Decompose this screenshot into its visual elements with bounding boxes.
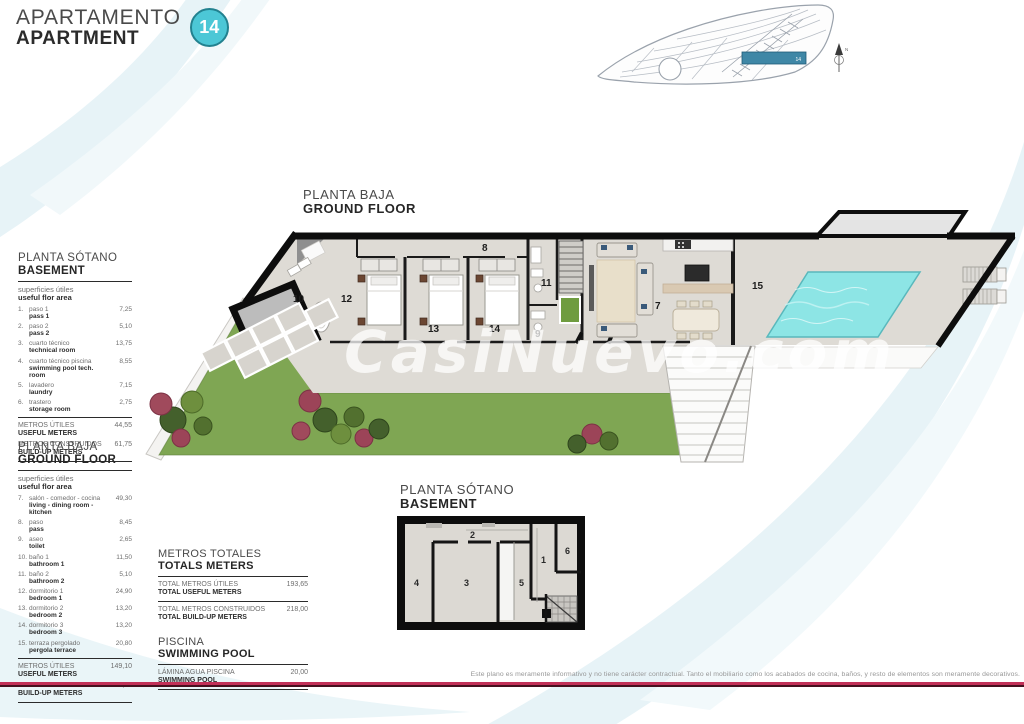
legend-item-value: 13,75 bbox=[110, 340, 132, 347]
legend-item-names: paso 2 pass 2 bbox=[29, 323, 110, 337]
legend-item-number: 1. bbox=[18, 306, 29, 313]
totals-block: METROS TOTALES TOTALS METERS TOTAL METRO… bbox=[158, 548, 308, 694]
total-label-en: TOTAL USEFUL METERS bbox=[158, 589, 282, 597]
legend-item-name-en: toilet bbox=[29, 543, 108, 550]
legend-item-number: 7. bbox=[18, 495, 29, 502]
ground-useful-meters: METROS ÚTILES USEFUL METERS 149,10 bbox=[18, 663, 132, 679]
total-value: 193,65 bbox=[282, 581, 308, 589]
total-value: 44,55 bbox=[106, 422, 132, 430]
title-english: APARTMENT bbox=[16, 29, 181, 49]
legend-item: 7. salón - comedor - cocina living - din… bbox=[18, 495, 132, 516]
legend-item-value: 8,55 bbox=[110, 358, 132, 365]
legend-item-number: 8. bbox=[18, 519, 29, 526]
legend-ground-subtitle-en: useful flor area bbox=[18, 483, 132, 491]
pool-title-en: SWIMMING POOL bbox=[158, 648, 308, 660]
legend-item-names: cuarto técnico technical room bbox=[29, 340, 110, 354]
legend-ground-title-es: PLANTA BAJA bbox=[18, 441, 132, 454]
legend-item-name-en: bedroom 2 bbox=[29, 612, 108, 619]
legend-item-name-es: paso 2 bbox=[29, 323, 108, 330]
legend-item-name-es: dormitorio 3 bbox=[29, 622, 108, 629]
divider bbox=[158, 664, 308, 665]
divider bbox=[18, 702, 132, 703]
legend-item-names: paso pass bbox=[29, 519, 110, 533]
total-label-es: LÁMINA AGUA PISCINA bbox=[158, 669, 282, 677]
legend-item-names: baño 1 bathroom 1 bbox=[29, 554, 110, 568]
legend-item: 5. lavadero laundry 7,15 bbox=[18, 382, 132, 396]
legend-item: 1. paso 1 pass 1 7,25 bbox=[18, 306, 132, 320]
room-label-15: 15 bbox=[752, 281, 764, 292]
room-label-1: 1 bbox=[541, 555, 546, 565]
legend-item-name-es: baño 1 bbox=[29, 554, 108, 561]
legend-item-name-es: dormitorio 1 bbox=[29, 588, 108, 595]
legend-item-name-es: trastero bbox=[29, 399, 108, 406]
dining-table bbox=[673, 301, 719, 339]
ground-floor-plan: 10 12 13 14 8 11 9 7 15 bbox=[145, 205, 1024, 470]
room-label-12: 12 bbox=[341, 294, 353, 305]
divider bbox=[158, 576, 308, 577]
room-label-6: 6 bbox=[565, 546, 570, 556]
room-label-14: 14 bbox=[489, 324, 501, 335]
room-label-5: 5 bbox=[519, 578, 524, 588]
legend-item-names: aseo toilet bbox=[29, 536, 110, 550]
room-label-4: 4 bbox=[414, 578, 419, 588]
divider bbox=[18, 281, 132, 282]
legend-item-name-es: lavadero bbox=[29, 382, 108, 389]
ground-floor-plan-title: PLANTA BAJA GROUND FLOOR bbox=[303, 188, 416, 216]
basement-useful-meters: METROS ÚTILES USEFUL METERS 44,55 bbox=[18, 422, 132, 438]
basement-title-en: BASEMENT bbox=[400, 497, 514, 511]
room-label-10: 10 bbox=[293, 294, 305, 305]
legend-item-value: 13,20 bbox=[110, 622, 132, 629]
legend-basement-title-es: PLANTA SÓTANO bbox=[18, 252, 132, 265]
legend-item-name-en: swimming pool tech. room bbox=[29, 365, 108, 379]
legend-item-name-es: terraza pergolado bbox=[29, 640, 108, 647]
divider bbox=[18, 658, 132, 659]
legend-item-name-es: paso 1 bbox=[29, 306, 108, 313]
closets bbox=[361, 259, 515, 271]
legend-item: 11. baño 2 bathroom 2 5,10 bbox=[18, 571, 132, 585]
legend-item-number: 6. bbox=[18, 399, 29, 406]
unit-number-badge: 14 bbox=[190, 8, 229, 47]
ground-floor-title-en: GROUND FLOOR bbox=[303, 202, 416, 216]
legend-item-number: 5. bbox=[18, 382, 29, 389]
legend-item-names: paso 1 pass 1 bbox=[29, 306, 110, 320]
legend-basement-subtitle-en: useful flor area bbox=[18, 294, 132, 302]
divider bbox=[18, 470, 132, 471]
legend-item-value: 2,65 bbox=[110, 536, 132, 543]
footer-line bbox=[0, 682, 1024, 687]
legend-item-name-en: living - dining room - kitchen bbox=[29, 502, 108, 516]
site-outline bbox=[598, 5, 833, 84]
legend-item-name-en: pass bbox=[29, 526, 108, 533]
legend-item-name-es: cuarto técnico piscina bbox=[29, 358, 108, 365]
legend-item-number: 3. bbox=[18, 340, 29, 347]
legend-item-name-en: pass 1 bbox=[29, 313, 108, 320]
total-value: 149,10 bbox=[106, 663, 132, 671]
page-header: APARTAMENTO APARTMENT 14 bbox=[16, 7, 229, 49]
internal-stairs bbox=[559, 241, 583, 293]
legend-item-number: 13. bbox=[18, 605, 29, 612]
legend-ground-items: 7. salón - comedor - cocina living - din… bbox=[18, 495, 132, 654]
total-value: 20,00 bbox=[282, 669, 308, 677]
page-title: APARTAMENTO APARTMENT bbox=[16, 7, 181, 49]
basement-plan-title: PLANTA SÓTANO BASEMENT bbox=[400, 483, 514, 511]
terrace-edge-band bbox=[738, 347, 938, 368]
legend-item-value: 5,10 bbox=[110, 571, 132, 578]
legend-item-number: 11. bbox=[18, 571, 29, 578]
legend-item-value: 7,25 bbox=[110, 306, 132, 313]
total-label-es: METROS ÚTILES bbox=[18, 663, 106, 671]
basement-plan: 2 4 3 5 1 6 bbox=[396, 514, 588, 634]
legend-item: 6. trastero storage room 2,75 bbox=[18, 399, 132, 413]
legend-item-name-en: technical room bbox=[29, 347, 108, 354]
room-label-2: 2 bbox=[470, 530, 475, 540]
legend-item-names: salón - comedor - cocina living - dining… bbox=[29, 495, 110, 516]
legend-item: 13. dormitorio 2 bedroom 2 13,20 bbox=[18, 605, 132, 619]
legend-item: 9. aseo toilet 2,65 bbox=[18, 536, 132, 550]
legend-item-value: 8,45 bbox=[110, 519, 132, 526]
legend-item-names: dormitorio 2 bedroom 2 bbox=[29, 605, 110, 619]
legend-item-name-es: paso bbox=[29, 519, 108, 526]
legend-item-name-es: salón - comedor - cocina bbox=[29, 495, 108, 502]
legend-item-name-es: dormitorio 2 bbox=[29, 605, 108, 612]
legend-ground-floor: PLANTA BAJA GROUND FLOOR superficies úti… bbox=[18, 441, 132, 707]
pool-title-es: PISCINA bbox=[158, 636, 308, 648]
total-builtup-meters: TOTAL METROS CONSTRUIDOS TOTAL BUILD-UP … bbox=[158, 606, 308, 622]
legend-item-name-en: bathroom 1 bbox=[29, 561, 108, 568]
legend-item-value: 5,10 bbox=[110, 323, 132, 330]
totals-title-es: METROS TOTALES bbox=[158, 548, 308, 560]
basement-lightwell bbox=[500, 542, 514, 620]
legend-item-name-en: pergola terrace bbox=[29, 647, 108, 654]
legend-item-names: trastero storage room bbox=[29, 399, 110, 413]
room-label-7: 7 bbox=[655, 301, 661, 312]
legend-item: 14. dormitorio 3 bedroom 3 13,20 bbox=[18, 622, 132, 636]
site-plan: 14 N bbox=[592, 2, 860, 96]
legend-item-name-en: bedroom 1 bbox=[29, 595, 108, 602]
compass-label: N bbox=[845, 47, 848, 52]
legend-item: 8. paso pass 8,45 bbox=[18, 519, 132, 533]
total-label-en: TOTAL BUILD-UP METERS bbox=[158, 614, 282, 622]
site-unit-label: 14 bbox=[795, 57, 801, 63]
total-label-es: METROS ÚTILES bbox=[18, 422, 106, 430]
legend-item: 10. baño 1 bathroom 1 11,50 bbox=[18, 554, 132, 568]
legend-item-value: 2,75 bbox=[110, 399, 132, 406]
legend-item-value: 11,50 bbox=[110, 554, 132, 561]
legend-item: 2. paso 2 pass 2 5,10 bbox=[18, 323, 132, 337]
legend-item-name-en: pass 2 bbox=[29, 330, 108, 337]
ground-floor-title-es: PLANTA BAJA bbox=[303, 188, 416, 202]
total-label-en: BUILD-UP METERS bbox=[18, 690, 106, 698]
legend-item: 12. dormitorio 1 bedroom 1 24,90 bbox=[18, 588, 132, 602]
patio-planter bbox=[560, 297, 580, 323]
legend-item-names: baño 2 bathroom 2 bbox=[29, 571, 110, 585]
room-label-3: 3 bbox=[464, 578, 469, 588]
legend-item: 3. cuarto técnico technical room 13,75 bbox=[18, 340, 132, 354]
legend-ground-title-en: GROUND FLOOR bbox=[18, 454, 132, 467]
legend-item-value: 20,80 bbox=[110, 640, 132, 647]
legend-basement-items: 1. paso 1 pass 1 7,25 2. paso 2 pass 2 5… bbox=[18, 306, 132, 413]
room-label-11: 11 bbox=[541, 278, 552, 289]
room-label-9: 9 bbox=[535, 329, 541, 340]
legend-item: 4. cuarto técnico piscina swimming pool … bbox=[18, 358, 132, 379]
legend-item-name-es: aseo bbox=[29, 536, 108, 543]
total-useful-meters: TOTAL METROS ÚTILES TOTAL USEFUL METERS … bbox=[158, 581, 308, 597]
room-label-13: 13 bbox=[428, 324, 440, 335]
legend-item-name-en: laundry bbox=[29, 389, 108, 396]
totals-title-en: TOTALS METERS bbox=[158, 560, 308, 572]
legend-item: 15. terraza pergolado pergola terrace 20… bbox=[18, 640, 132, 654]
legend-item-name-en: storage room bbox=[29, 406, 108, 413]
legend-item-number: 2. bbox=[18, 323, 29, 330]
divider bbox=[158, 689, 308, 690]
legend-basement: PLANTA SÓTANO BASEMENT superficies útile… bbox=[18, 252, 132, 466]
legend-item-name-es: cuarto técnico bbox=[29, 340, 108, 347]
divider bbox=[158, 601, 308, 602]
site-unit-highlight: 14 bbox=[742, 52, 806, 64]
legend-item-name-en: bedroom 3 bbox=[29, 629, 108, 636]
total-label-en: USEFUL METERS bbox=[18, 430, 106, 438]
legend-item-value: 7,15 bbox=[110, 382, 132, 389]
legend-item-number: 12. bbox=[18, 588, 29, 595]
divider bbox=[18, 417, 132, 418]
legend-item-number: 10. bbox=[18, 554, 29, 561]
legend-item-names: dormitorio 1 bedroom 1 bbox=[29, 588, 110, 602]
legend-item-name-en: bathroom 2 bbox=[29, 578, 108, 585]
legend-item-names: cuarto técnico piscina swimming pool tec… bbox=[29, 358, 110, 379]
legend-item-name-es: baño 2 bbox=[29, 571, 108, 578]
total-label-es: TOTAL METROS ÚTILES bbox=[158, 581, 282, 589]
legend-item-names: terraza pergolado pergola terrace bbox=[29, 640, 110, 654]
legend-item-names: dormitorio 3 bedroom 3 bbox=[29, 622, 110, 636]
legend-item-number: 9. bbox=[18, 536, 29, 543]
room-label-8: 8 bbox=[482, 243, 488, 254]
beds bbox=[358, 275, 519, 325]
legend-item-number: 15. bbox=[18, 640, 29, 647]
roof-planter bbox=[817, 212, 965, 236]
legend-item-value: 24,90 bbox=[110, 588, 132, 595]
total-label-es: TOTAL METROS CONSTRUIDOS bbox=[158, 606, 282, 614]
title-spanish: APARTAMENTO bbox=[16, 7, 181, 29]
footer-disclaimer: Este plano es meramente informativo y no… bbox=[471, 671, 1020, 678]
legend-item-number: 14. bbox=[18, 622, 29, 629]
total-value: 218,00 bbox=[282, 606, 308, 614]
legend-item-number: 4. bbox=[18, 358, 29, 365]
site-notch bbox=[659, 58, 681, 80]
total-label-en: USEFUL METERS bbox=[18, 671, 106, 679]
legend-item-value: 49,30 bbox=[110, 495, 132, 502]
basement-title-es: PLANTA SÓTANO bbox=[400, 483, 514, 497]
legend-basement-title-en: BASEMENT bbox=[18, 265, 132, 278]
legend-item-names: lavadero laundry bbox=[29, 382, 110, 396]
compass-icon: N bbox=[835, 43, 849, 72]
legend-item-value: 13,20 bbox=[110, 605, 132, 612]
